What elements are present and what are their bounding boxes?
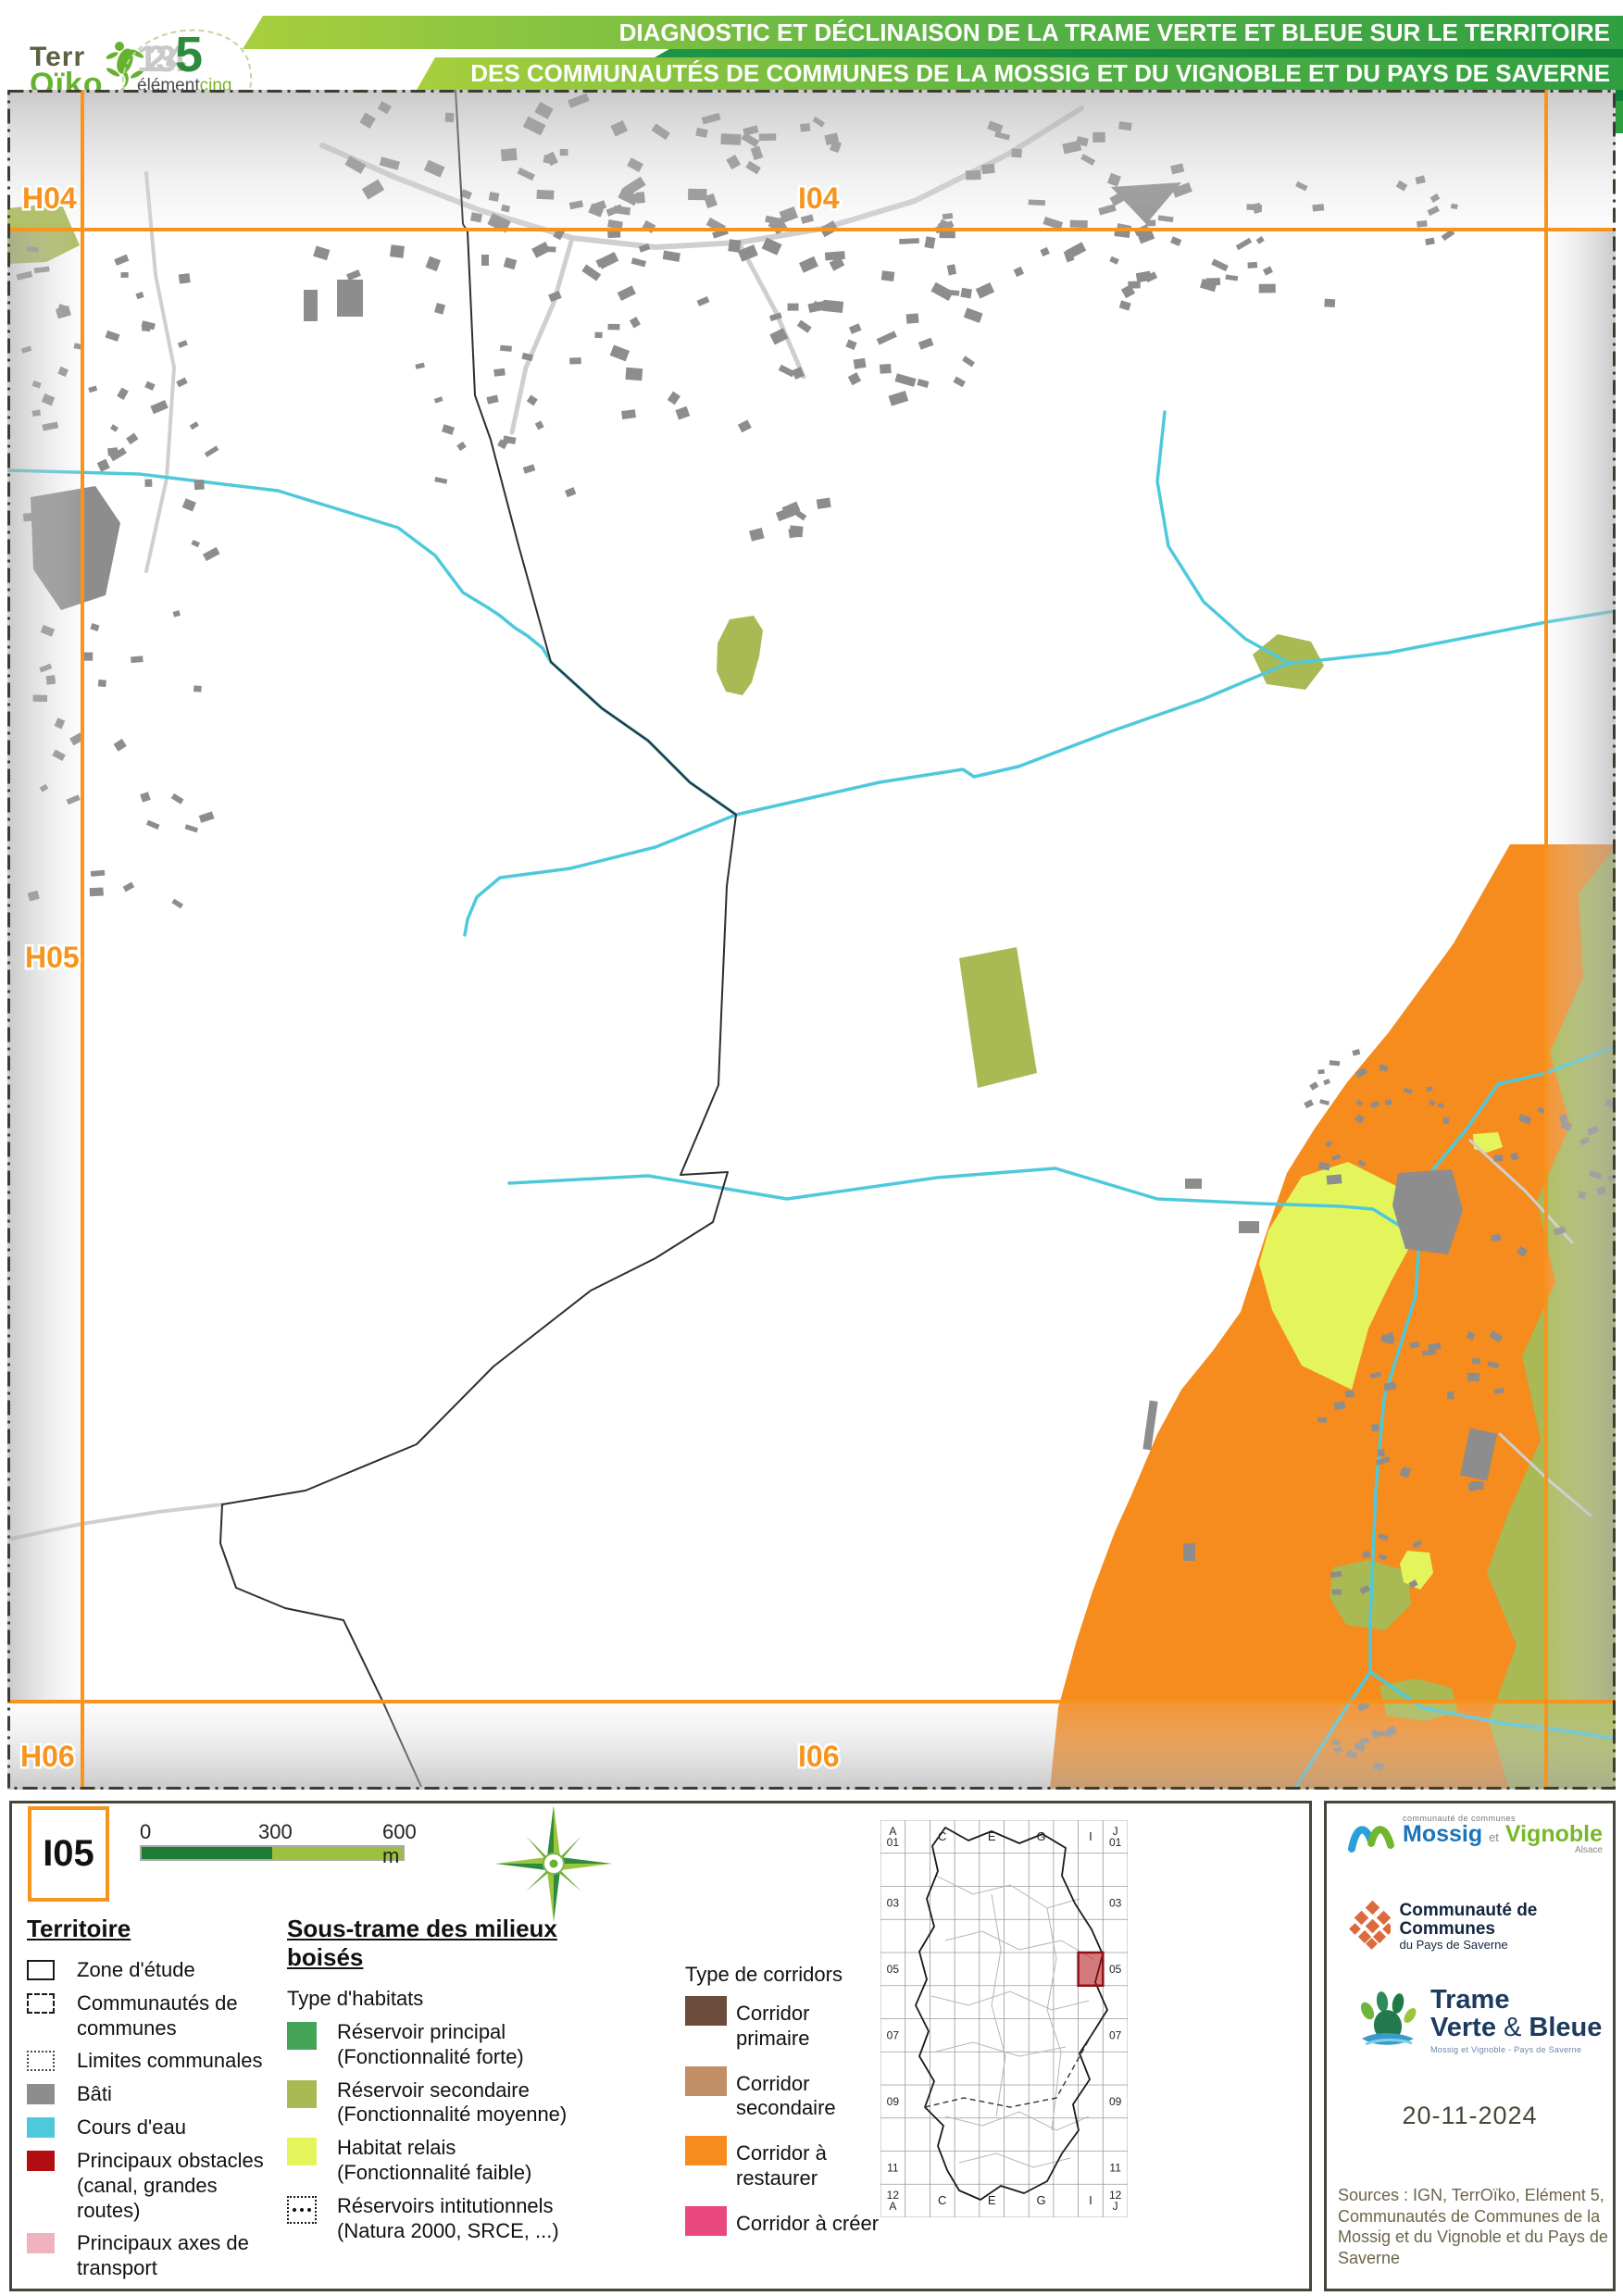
inset-grid-label: 09 [887,2095,900,2108]
trame-verte-bleue-logo: Trame Verte & Bleue Mossig et Vignoble -… [1355,1987,1602,2054]
map-sheet: { "header": { "title_line1": "DIAGNOSTIC… [0,0,1623,2296]
grid-cell-label: H04 [22,181,77,215]
zone-etude-swatch [27,1960,55,1980]
inset-grid-label: 09 [1109,2095,1122,2108]
legend-item-axes: Principaux axes de transport [27,2231,305,2281]
cours-eau-swatch [27,2117,55,2138]
mossig-vignoble-logo: communauté de communes Mossig et Vignobl… [1347,1815,1603,1855]
scale-0: 0 [140,1820,151,1844]
inset-locator-map[interactable]: A01030507091112AJ01030507091112JCEGICEGI [880,1820,1128,2217]
inset-grid-label: 07 [887,2028,900,2041]
map-canvas: H04I04H05H06I06 [7,90,1616,1790]
compass-rose-icon [493,1803,614,1924]
legend-item-rp: Réservoir principal(Fonctionnalité forte… [287,2020,602,2070]
tvb-paw-icon [1355,1990,1421,2052]
legend-item-limites: Limites communales [27,2049,305,2074]
legend-item-csec: Corridor secondaire [685,2066,889,2122]
reservoirs-institutionnels-swatch [287,2196,317,2224]
inset-grid-label: 11 [1109,2161,1121,2174]
legend-item-bati: Bâti [27,2082,305,2107]
inset-grid-label: E [988,1829,996,1843]
legend-item-zone: Zone d'étude [27,1958,305,1983]
corridor-primaire-swatch [685,1996,727,2026]
territoire-title: Territoire [27,1915,305,1943]
grid-cell-label: I06 [798,1740,839,1773]
inset-grid-label: 01 [1109,1836,1122,1849]
habitats-title: Type d'habitats [287,1987,602,2011]
scale-bar-dark-half [142,1847,272,1859]
soustrame-title: Sous-trame des milieux boisés [287,1915,602,1972]
header-title-bar-1: DIAGNOSTIC ET DÉCLINAISON DE LA TRAME VE… [243,16,1623,49]
legend-item-crest: Corridor à restaurer [685,2136,889,2191]
inset-grid-label: 03 [1109,1896,1122,1909]
axes-swatch [27,2233,55,2253]
inset-grid-label: 07 [1109,2028,1122,2041]
legend-territoire: Territoire Zone d'étude Communautés de c… [27,1915,305,2290]
inset-grid-label: A [889,2200,896,2213]
credits-panel: communauté de communes Mossig et Vignobl… [1324,1801,1616,2291]
inset-grid-label: E [988,2193,996,2207]
inset-grid-label: 05 [1109,1963,1122,1976]
title-line-1: DIAGNOSTIC ET DÉCLINAISON DE LA TRAME VE… [619,19,1610,47]
header: DIAGNOSTIC ET DÉCLINAISON DE LA TRAME VE… [0,0,1623,89]
inset-grid-label: I [1089,1829,1092,1843]
legend-corridors: Type de corridors Corridor primaire Corr… [685,1963,889,2245]
saverne-diamonds-icon [1347,1901,1391,1953]
legend-item-eau: Cours d'eau [27,2115,305,2140]
legend-soustrame: Sous-trame des milieux boisés Type d'hab… [287,1915,602,2252]
grid-cell-label: H05 [25,941,80,974]
sources-note: Sources : IGN, TerrOïko, Elément 5, Comm… [1338,2185,1608,2268]
reservoir-principal-swatch [287,2022,317,2050]
habitat-relais-swatch [287,2138,317,2165]
reservoir-secondaire-swatch [287,2080,317,2108]
header-title-bar-2: DES COMMUNAUTÉS DE COMMUNES DE LA MOSSIG… [417,57,1623,90]
inset-grid-label: 05 [887,1963,900,1976]
sheet-code-box: I05 [28,1806,109,1902]
legend-item-hr: Habitat relais(Fonctionnalité faible) [287,2136,602,2186]
grid-cell-label: H06 [20,1740,75,1773]
pays-de-saverne-logo: Communauté de Communes du Pays de Savern… [1347,1901,1613,1953]
bati-swatch [27,2084,55,2104]
main-map[interactable]: H04I04H05H06I06 [7,90,1616,1790]
inset-current-sheet-highlight [1079,1953,1104,1986]
legend-item-ccreer: Corridor à créer [685,2206,889,2237]
inset-grid-label: 01 [887,1836,900,1849]
inset-grid-label: G [1036,2193,1045,2207]
inset-grid-label: C [938,1829,946,1843]
inset-grid-label: G [1036,1829,1045,1843]
obstacles-swatch [27,2151,55,2171]
inset-map-canvas: A01030507091112AJ01030507091112JCEGICEGI [880,1820,1128,2217]
legend-item-inst: Réservoirs intitutionnels(Natura 2000, S… [287,2194,602,2244]
legend-item-cp: Corridor primaire [685,1996,889,2052]
corridor-creer-swatch [685,2206,727,2236]
legend-item-obstacles: Principaux obstacles (canal, grandes rou… [27,2149,305,2223]
out-of-cell-veil-right [1546,230,1616,1702]
corridors-title: Type de corridors [685,1963,889,1987]
map-date: 20-11-2024 [1327,2102,1613,2130]
title-line-2: DES COMMUNAUTÉS DE COMMUNES DE LA MOSSIG… [470,59,1610,88]
communautes-swatch [27,1993,55,2014]
limites-swatch [27,2051,55,2071]
inset-grid-label: J [1113,2200,1118,2213]
corridor-restaurer-swatch [685,2136,727,2165]
legend-item-rs: Réservoir secondaire(Fonctionnalité moye… [287,2078,602,2128]
inset-grid-label: 03 [887,1896,900,1909]
scale-bar: 0 300 600 m [140,1820,418,1861]
element-cinq-logo: 12345 élémentcinq [137,26,239,96]
corridor-secondaire-swatch [685,2066,727,2096]
legend-item-cc: Communautés de communes [27,1991,305,2041]
inset-grid-label: I [1089,2193,1092,2207]
grid-cell-label: I04 [798,181,840,215]
inset-grid-label: 11 [887,2161,899,2174]
mossig-swoosh-icon [1347,1816,1395,1854]
inset-grid-label: C [938,2193,946,2207]
scale-600: 600 m [382,1820,418,1868]
legend-panel: I05 0 300 600 m Territoire Zone d'étude … [9,1801,1312,2291]
scale-300: 300 [258,1820,293,1844]
